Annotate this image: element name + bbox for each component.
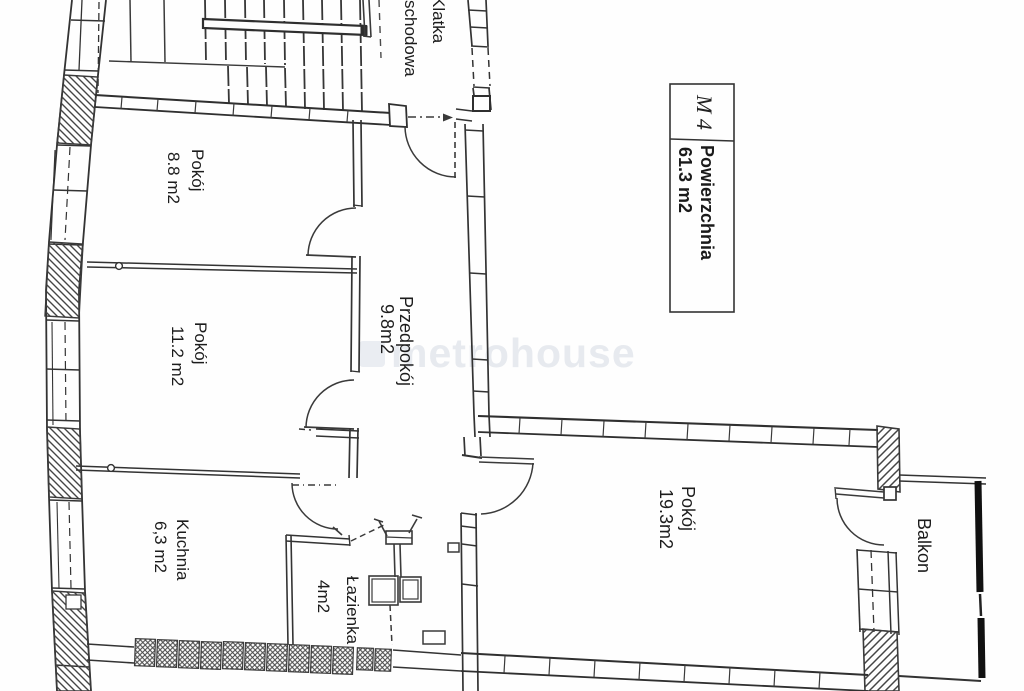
svg-text:schodowa: schodowa (401, 0, 420, 77)
svg-text:Kuchnia: Kuchnia (173, 519, 192, 581)
svg-text:Pokój: Pokój (678, 486, 698, 531)
svg-text:9.8m2: 9.8m2 (377, 304, 397, 354)
svg-text:Przedpokój: Przedpokój (396, 296, 416, 386)
svg-text:Powierzchnia: Powierzchnia (697, 145, 717, 261)
svg-text:Łazienka: Łazienka (343, 576, 362, 645)
svg-text:Pokój: Pokój (191, 322, 210, 365)
svg-text:19.3m2: 19.3m2 (656, 489, 676, 549)
svg-text:metrohouse: metrohouse (391, 330, 636, 376)
svg-text:6,3 m2: 6,3 m2 (151, 521, 170, 573)
svg-text:Balkon: Balkon (914, 518, 934, 573)
svg-text:8.8 m2: 8.8 m2 (164, 152, 183, 204)
svg-text:4m2: 4m2 (314, 580, 333, 613)
svg-text:11.2 m2: 11.2 m2 (168, 326, 187, 386)
svg-text:61.3 m2: 61.3 m2 (675, 147, 695, 213)
svg-text:Klatka: Klatka (429, 0, 448, 44)
svg-text:Pokój: Pokój (188, 149, 207, 192)
svg-text:M 4: M 4 (692, 94, 717, 130)
